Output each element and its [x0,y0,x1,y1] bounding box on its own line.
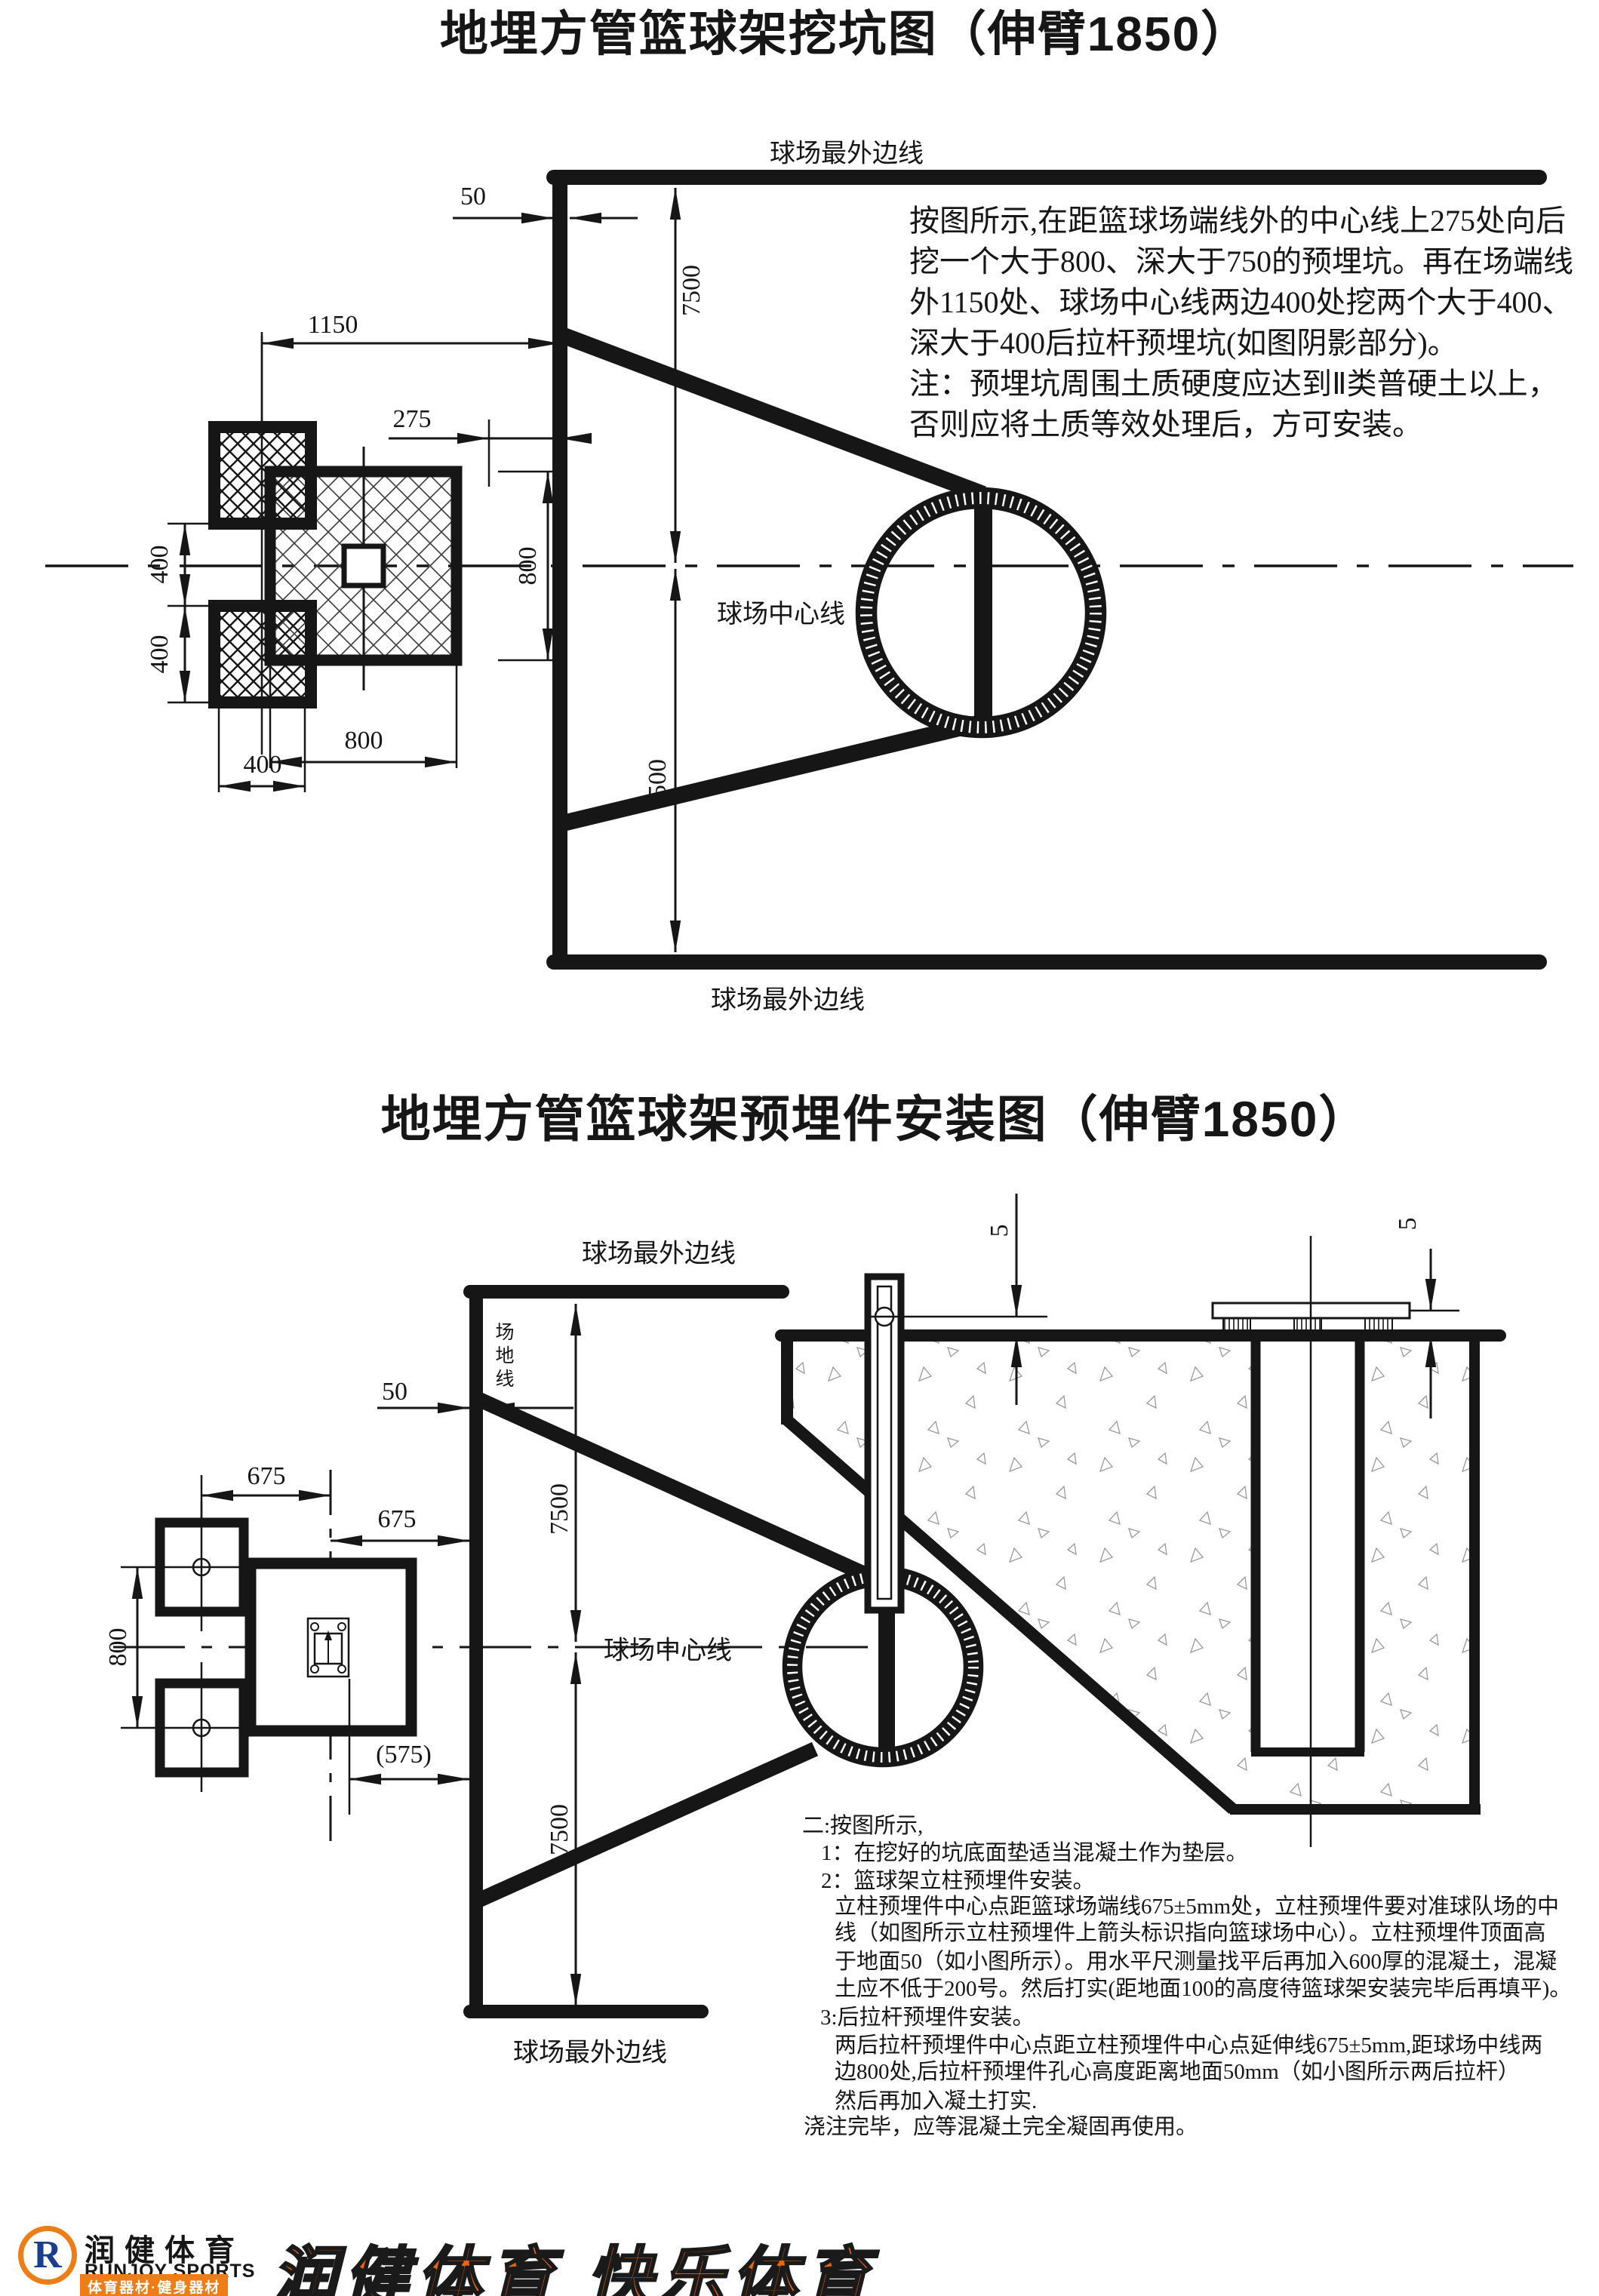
d1-dim-7500-bottom: 7500 [644,759,672,810]
d2-dim-5-right: 5 [1394,1218,1422,1231]
d1-dim-7500-top: 7500 [678,265,706,316]
drawing-sheet: 地埋方管篮球架挖坑图（伸臂1850） 地埋方管篮球架预埋件安装图（伸臂1850）… [0,0,1599,2296]
d2-dim-675-a: 675 [248,1462,286,1491]
brand-subtitle-bar: 体育器材·健身器材 [80,2274,228,2296]
note-line: 浇注完毕，应等混凝土完全凝固再使用。 [804,2109,1198,2141]
note-line: 土应不低于200号。然后打实(距地面100的高度待篮球架安装完毕后再填平)。 [835,1971,1571,2002]
logo-letter: R [18,2226,77,2285]
note-line: 1：在挖好的坑底面垫适当混凝土作为垫层。 [821,1835,1248,1867]
d2-field-line-label: 场地线 [489,1322,516,1392]
note-line: 线（如图所示立柱预埋件上箭头标识指向篮球场中心）。立柱预埋件顶面高 [835,1915,1546,1947]
d2-dim-50: 50 [382,1378,407,1406]
brand-slogan: 润健体育 快乐体育 [272,2224,877,2296]
d1-dim-400-width: 400 [244,751,282,779]
d1-outer-line-bottom-label: 球场最外边线 [711,979,865,1016]
pole-tube-mark [344,546,383,586]
d2-dim-7500-bottom: 7500 [546,1804,574,1855]
d1-center-line-label: 球场中心线 [717,593,845,630]
d2-center-line-label: 球场中心线 [604,1630,732,1667]
d2-dim-800: 800 [104,1628,133,1667]
d2-outer-line-top-label: 球场最外边线 [582,1233,736,1270]
d1-dim-275: 275 [393,405,432,434]
d2-outer-line-bottom-label: 球场最外边线 [513,2032,667,2069]
runjoy-logo-icon: R [18,2226,77,2285]
d1-dim-400-gap-b: 400 [146,635,174,674]
d2-dim-7500-top: 7500 [546,1483,574,1535]
d2-dim-5-left: 5 [986,1225,1014,1237]
note-line: 3:后拉杆预埋件安装。 [820,1999,1035,2031]
d2-dim-575: (575) [376,1741,432,1769]
d1-dim-400-gap-a: 400 [146,546,174,584]
d1-dim-800-height: 800 [514,547,543,586]
d1-outer-line-top-label: 球场最外边线 [770,133,924,170]
d1-dim-50: 50 [460,183,486,211]
pole-tube-section [1251,1342,1364,1752]
title-pit-diagram: 地埋方管篮球架挖坑图（伸臂1850） [440,0,1250,65]
d1-dim-1150: 1150 [308,311,358,340]
d1-dim-800-width: 800 [345,727,383,755]
d2-dim-675-b: 675 [378,1505,417,1534]
d1-note-paragraph: 按图所示,在距篮球场端线外的中心线上275处向后 挖一个大于800、深大于750… [909,201,1573,445]
note-line: 边800处,后拉杆预埋件孔心高度距离地面50mm（如小图所示两后拉杆） [835,2054,1520,2085]
title-install-diagram: 地埋方管篮球架预埋件安装图（伸臂1850） [381,1079,1370,1151]
